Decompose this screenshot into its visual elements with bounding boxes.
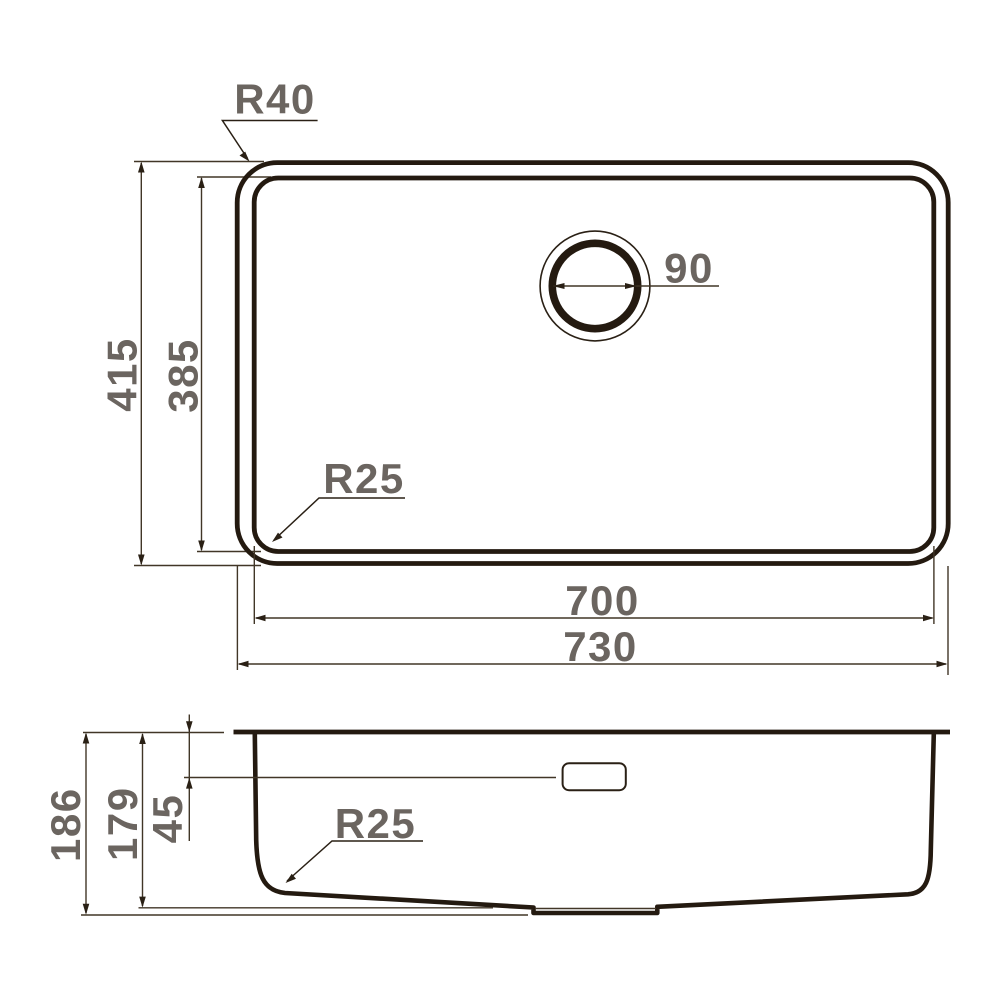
svg-text:90: 90 [664,245,714,292]
svg-text:R40: R40 [234,76,316,123]
svg-text:R25: R25 [323,455,405,502]
svg-text:385: 385 [160,338,207,413]
svg-text:179: 179 [99,786,146,861]
svg-text:730: 730 [563,623,638,670]
svg-text:415: 415 [99,337,146,412]
svg-text:700: 700 [565,577,640,624]
svg-text:R25: R25 [335,800,417,847]
svg-text:45: 45 [144,794,191,844]
svg-text:186: 186 [42,787,89,862]
